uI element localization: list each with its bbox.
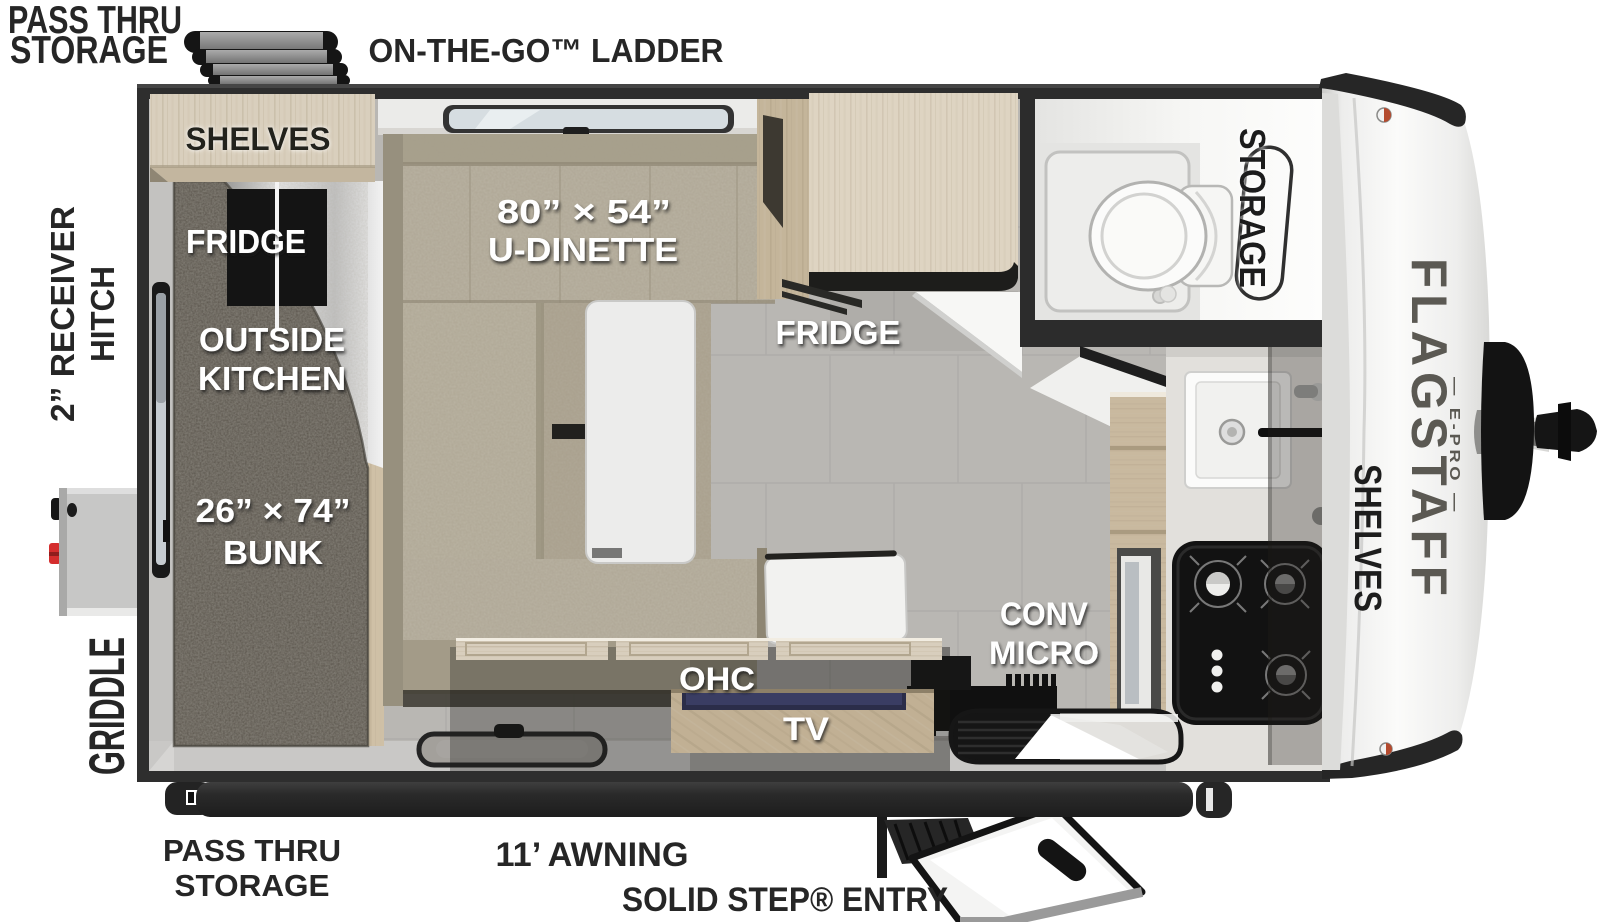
svg-text:MICRO: MICRO (989, 635, 1099, 671)
svg-text:11’ AWNING: 11’ AWNING (496, 836, 689, 874)
svg-text:KITCHEN: KITCHEN (198, 360, 346, 397)
svg-text:2” RECEIVER: 2” RECEIVER (44, 206, 81, 422)
svg-text:OUTSIDE: OUTSIDE (199, 321, 345, 358)
svg-text:CONV: CONV (1000, 596, 1089, 632)
svg-text:ON-THE-GO™ LADDER: ON-THE-GO™ LADDER (369, 32, 724, 69)
svg-text:— E-PRO —: — E-PRO — (1446, 377, 1463, 515)
svg-text:STORAGE: STORAGE (1232, 128, 1273, 288)
svg-text:U-DINETTE: U-DINETTE (488, 231, 678, 268)
svg-text:GRIDDLE: GRIDDLE (79, 637, 135, 775)
svg-text:HITCH: HITCH (84, 266, 121, 362)
svg-text:SHELVES: SHELVES (1346, 464, 1388, 612)
svg-text:80” × 54”: 80” × 54” (497, 193, 671, 230)
svg-text:PASS THRU: PASS THRU (163, 833, 341, 868)
svg-text:SHELVES: SHELVES (186, 121, 331, 157)
svg-text:OHC: OHC (679, 661, 755, 697)
svg-text:STORAGE: STORAGE (175, 868, 330, 903)
svg-text:SOLID STEP® ENTRY: SOLID STEP® ENTRY (622, 881, 948, 919)
svg-text:FRIDGE: FRIDGE (186, 223, 306, 260)
svg-text:STORAGE: STORAGE (10, 29, 168, 72)
svg-text:BUNK: BUNK (223, 534, 323, 571)
svg-text:TV: TV (783, 711, 830, 747)
svg-text:26” × 74”: 26” × 74” (196, 492, 351, 529)
svg-text:FRIDGE: FRIDGE (776, 314, 901, 351)
